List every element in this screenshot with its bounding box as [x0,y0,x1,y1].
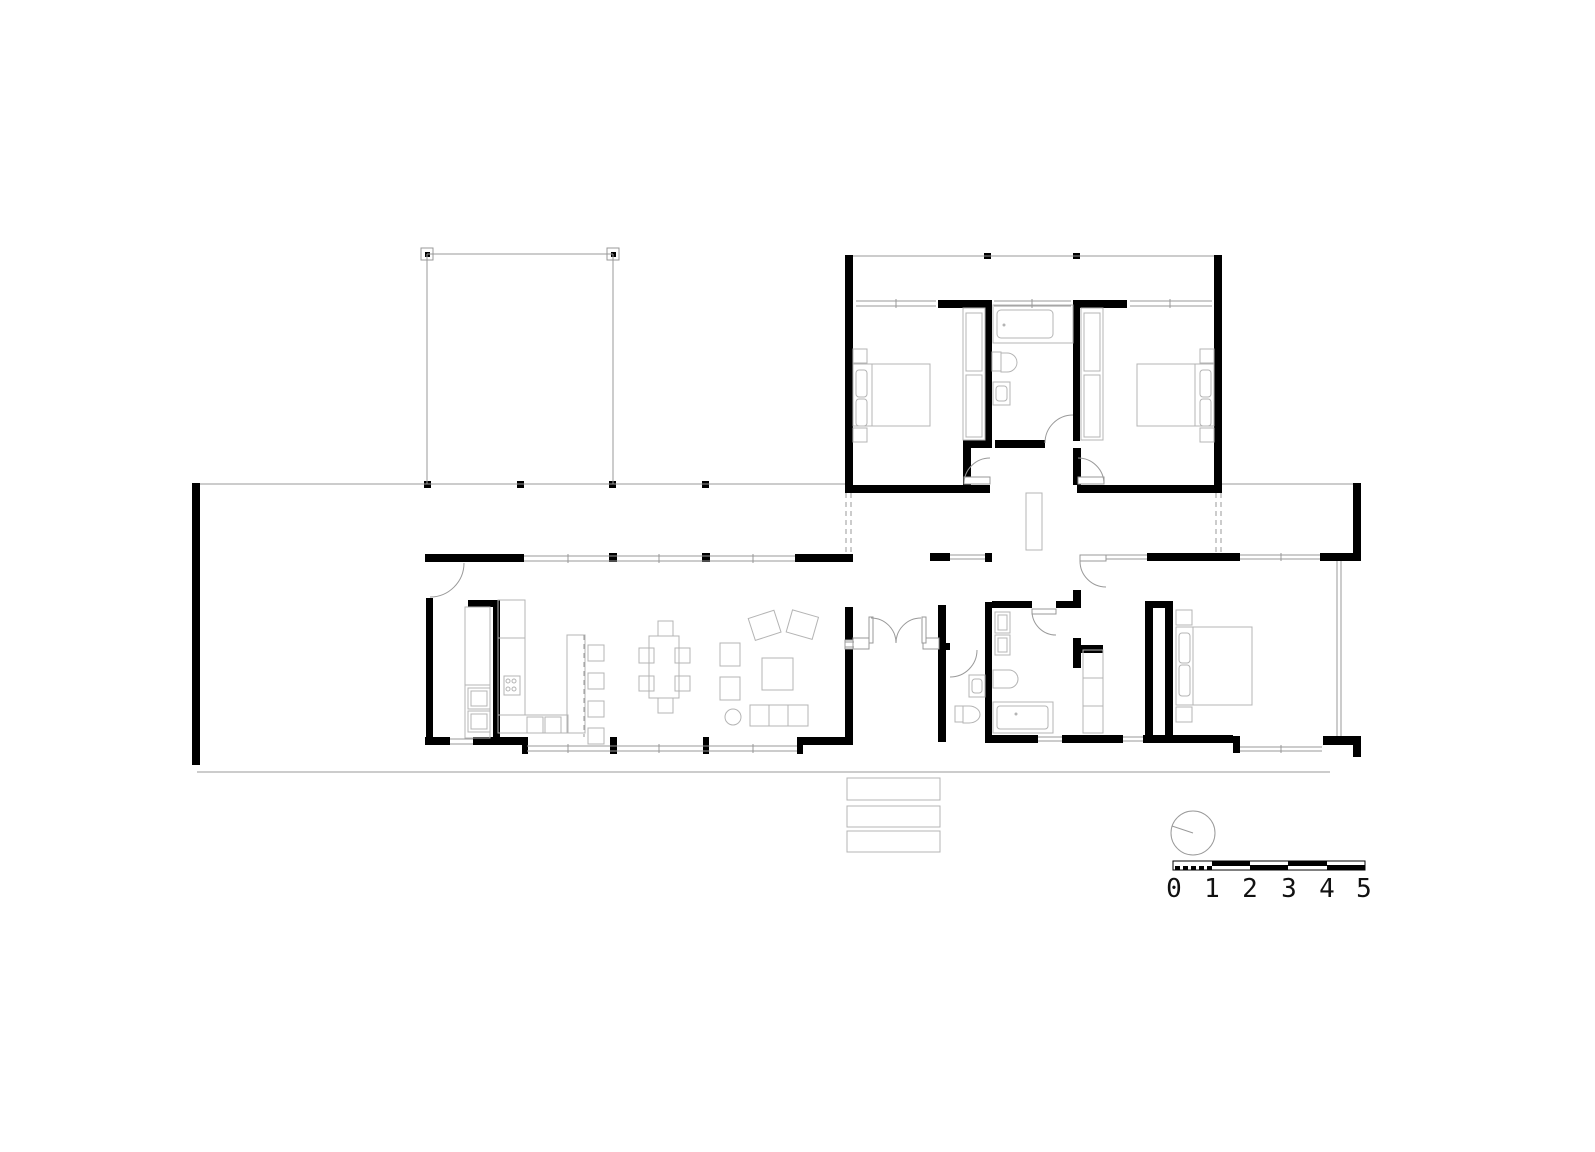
powder-sink-basin [972,679,982,693]
linen-closet [1083,650,1103,733]
kitchen-tall-cabinets [465,607,490,738]
burner [506,687,510,691]
wall-closet-west [1073,638,1081,668]
door-swing [1032,611,1056,635]
nightstand [853,349,867,363]
nightstand [853,428,867,442]
tub-drain [1015,713,1018,716]
wardrobe-bedroom1-inner [966,313,982,371]
wall-east-end [1353,483,1361,560]
door-leaf-open [1078,477,1104,484]
door-leaf-open [1032,609,1056,614]
laundry-sink [993,670,1018,688]
wall-southeast-corner [1353,736,1361,757]
wall-living-south [425,737,450,745]
pillow [1179,633,1190,663]
kitchen-cabinet [545,717,561,733]
bathtub2 [997,706,1048,729]
kitchen-counter [498,715,568,733]
kitchen-cabinet [527,717,543,733]
wall-corridor-south [985,553,992,562]
nightstand [1176,707,1192,722]
bar-stool [588,645,604,661]
wall-bathroom-south [963,440,992,448]
wall-bedroom3-west [1165,601,1173,740]
hall-cabinet [1026,493,1042,550]
bed-bedroom2 [1137,364,1214,426]
wall-powder-stub [938,643,950,650]
dining-chair [658,621,673,636]
wardrobe-bedroom2-inner [1084,313,1100,371]
pillow [1200,370,1211,397]
wall-living-north [425,554,524,562]
pillow [1200,399,1211,426]
door-leaf-open [1080,555,1106,561]
nightstand [1176,610,1192,625]
toilet-bowl [1001,353,1017,372]
entry-step [847,778,940,800]
wall-corridor-south [930,553,950,561]
washer-inner [998,615,1007,630]
armchair [720,677,740,700]
kitchen-island [567,635,585,733]
dining-chair [675,648,690,663]
wall-closet-cap [1081,645,1103,653]
wall-bath2-north [992,601,1032,608]
coffee-table [762,658,793,690]
wall-corridor-pier [1073,590,1081,603]
wall-bathroom-west [985,307,992,441]
wall-bedroom-wing-east [1214,255,1222,493]
wall-porch-west [845,607,853,742]
door-swing [1080,561,1106,587]
scale-bar-check [1207,866,1212,870]
scale-bar-segment [1288,861,1327,866]
door-swing [1045,415,1073,443]
burner [512,687,516,691]
wall-bedroom-wing-north [938,300,992,308]
pillow [856,399,867,426]
floorplan-drawing [0,0,1595,1152]
powder-toilet-tank [955,706,963,722]
entry-door-leaf [922,617,926,643]
sofa [750,705,808,726]
pillow [1179,665,1190,696]
bed-bedroom1 [853,364,930,426]
scale-bar-segment [1327,865,1365,870]
window-post [1233,736,1240,753]
burner [506,679,510,683]
door-leaf-open [964,477,990,484]
toilet-tank [992,352,1001,371]
wall-pantry [493,600,500,738]
tub-drain [1003,324,1006,327]
scale-bar-segment [1212,861,1250,866]
wall-bedroom-wing-south [1077,485,1222,493]
bathtub2-surround [993,702,1053,733]
wall-bedroom-wing-north [1073,300,1127,308]
door-swing [430,563,464,597]
entry-step [847,806,940,827]
scale-bar-segment [1250,865,1288,870]
scale-bar-check [1183,866,1188,870]
dining-chair [658,698,673,713]
nightstand [1200,349,1214,363]
north-needle [1172,826,1193,833]
entry-door-swing [896,618,921,643]
dryer-inner [998,638,1007,652]
wall-bedroom-wing-west [845,255,853,493]
dining-chair [639,676,654,691]
wall-southwing-south [1143,735,1233,743]
kitchen-oven-inner [471,691,487,706]
wardrobe-bedroom1-inner [966,375,982,437]
kitchen-counter [498,600,525,638]
scale-bar-check [1175,866,1180,870]
armchair [720,643,740,666]
dining-chair [639,648,654,663]
entry-door-leaf [869,617,873,643]
side-table [725,709,741,725]
bed-bedroom3 [1176,627,1252,705]
wall-kitchen-west [426,598,433,743]
bar-stool [588,673,604,689]
wall-powder-east [985,602,992,743]
bar-stool [588,728,604,744]
armchair-angled [748,610,781,640]
pillow [856,370,867,397]
powder-sink [969,675,985,697]
entry-step [847,831,940,852]
kitchen-oven-inner [471,714,487,729]
window-post [797,737,803,754]
wall-bathroom-east [1073,307,1080,441]
wall-corridor-south [1147,553,1240,561]
wall-pantry-cap [468,600,500,607]
scale-bar-check [1199,866,1204,870]
nightstand [1200,428,1214,442]
wall-living-north [795,554,853,562]
wall-corridor-south [1320,553,1361,561]
wardrobe-bedroom2-inner [1084,375,1100,437]
wall-bath2-east [1145,602,1153,740]
bathtub [997,310,1053,338]
wall-porch-east [938,605,946,742]
wall-southwing-south [985,735,1038,743]
wall-living-south [797,737,853,745]
sink-basin [996,386,1007,401]
dining-chair [675,676,690,691]
powder-toilet-bowl [963,706,980,723]
wall-bathroom-south [995,440,1045,448]
cooktop [504,676,520,695]
armchair-angled [786,610,818,640]
entry-sidelight [853,638,869,649]
wall-west-end [192,483,200,765]
scale-bar-check [1191,866,1196,870]
wall-bedroom-wing-south [845,485,990,493]
wall-southwing-south [1062,735,1123,743]
bar-stool [588,701,604,717]
entry-door-swing [871,618,896,643]
burner [512,679,516,683]
floorplan-sheet: 0 1 2 3 4 5 [0,0,1595,1152]
door-swing [950,650,977,677]
